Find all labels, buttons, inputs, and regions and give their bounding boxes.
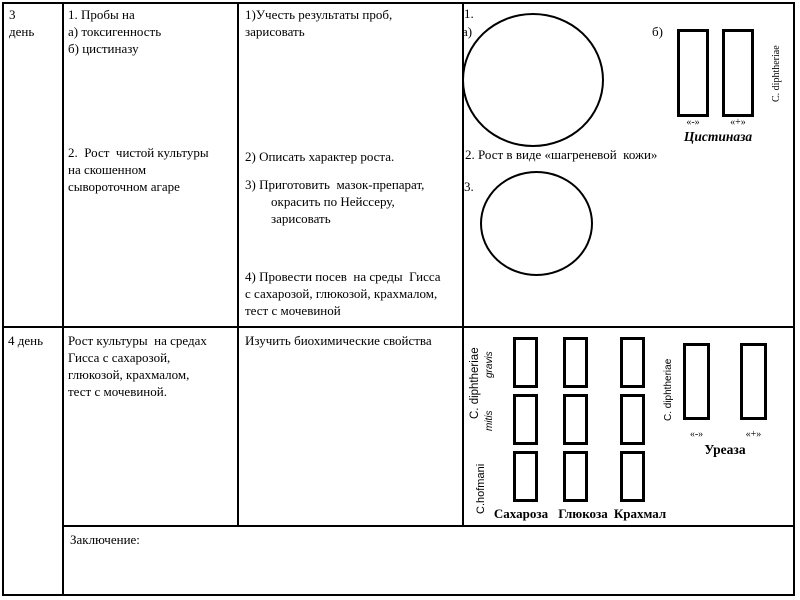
hiss-tube-gravis-sucrose	[513, 337, 538, 388]
biotype-mitis-label: mitis	[484, 410, 495, 431]
hiss-tube-mitis-glucose	[563, 394, 588, 445]
urease-tube-positive	[740, 343, 767, 420]
hiss-tube-mitis-starch	[620, 394, 645, 445]
result-1b-label: б)	[652, 23, 663, 40]
day3-tests-item2: 2. Рост чистой культуры на скошенном сыв…	[68, 144, 233, 195]
hiss-tube-gravis-glucose	[563, 337, 588, 388]
column-label-glucose: Глюкоза	[554, 505, 612, 522]
result-1a-label: а)	[462, 23, 472, 40]
column-label-starch: Крахмал	[611, 505, 669, 522]
urease-positive-sign: «+»	[735, 429, 772, 441]
conclusion-label: Заключение:	[70, 531, 140, 548]
column-label-sucrose: Сахароза	[491, 505, 551, 522]
cystinase-species-label: C. diphtheriae	[771, 45, 782, 102]
urease-species-label: C. diphtheriae	[663, 359, 674, 421]
day3-action-4: 4) Провести посев на среды Гисса с сахар…	[245, 268, 460, 319]
biotype-gravis-label: gravis	[484, 351, 495, 378]
urease-title: Уреаза	[684, 441, 766, 458]
hiss-tube-hofmani-glucose	[563, 451, 588, 502]
day-3-label: 3 день	[9, 6, 34, 40]
column-divider-day	[62, 2, 64, 596]
cystinase-tube-negative	[677, 29, 709, 117]
result-1-number: 1.	[464, 5, 474, 22]
day-4-label: 4 день	[8, 332, 43, 349]
day3-growth-note: 2. Рост в виде «шагреневой кожи»	[465, 146, 755, 163]
hiss-tube-hofmani-sucrose	[513, 451, 538, 502]
urease-negative-sign: «-»	[678, 429, 715, 441]
cystinase-title: Цистиназа	[667, 128, 769, 145]
day3-action-2: 2) Описать характер роста.	[245, 148, 460, 165]
day3-action-3: 3) Приготовить мазок-препарат, окрасить …	[245, 176, 460, 227]
row-divider-day3-day4	[2, 326, 795, 328]
day4-action: Изучить биохимические свойства	[245, 332, 460, 349]
lab-protocol-table: 3 день 1. Пробы на а) токсигенность б) ц…	[0, 0, 800, 600]
hiss-tube-hofmani-starch	[620, 451, 645, 502]
column-divider-tasks	[237, 2, 239, 527]
row-divider-conclusion	[62, 525, 795, 527]
result-3-number: 3.	[464, 178, 474, 195]
species-diphtheriae-label: C. diphtheriae	[469, 347, 481, 419]
hiss-tube-mitis-sucrose	[513, 394, 538, 445]
day4-task: Рост культуры на средах Гисса с сахарозо…	[68, 332, 233, 400]
smear-drawing-circle	[480, 171, 593, 276]
species-hofmani-label: C.hofmani	[475, 464, 487, 514]
day3-tests-item1: 1. Пробы на а) токсигенность б) цистиназ…	[68, 6, 233, 57]
petri-dish-circle	[462, 13, 604, 147]
urease-tube-negative	[683, 343, 710, 420]
hiss-tube-gravis-starch	[620, 337, 645, 388]
cystinase-tube-positive	[722, 29, 754, 117]
day3-action-1: 1)Учесть результаты проб, зарисовать	[245, 6, 460, 40]
